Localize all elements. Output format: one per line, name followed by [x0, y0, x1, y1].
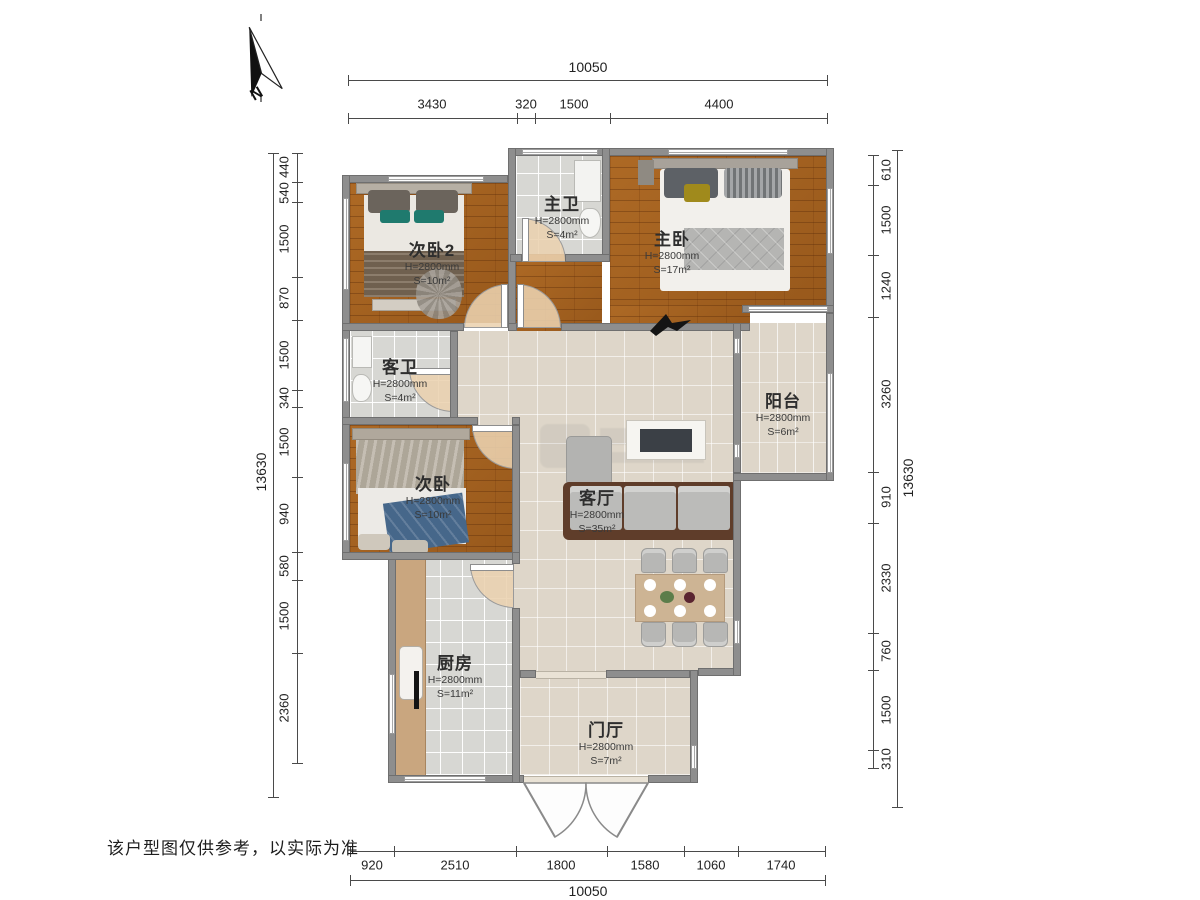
wall-balcony-bottom	[733, 473, 834, 481]
dim-label: 310	[879, 748, 894, 770]
dim-tick	[292, 763, 303, 764]
dim-tick	[868, 185, 879, 186]
dim-label: 2360	[277, 694, 292, 723]
bedroom2-door-leaf	[501, 284, 508, 328]
wall-guestbath-right	[450, 331, 458, 425]
wall-guestbath-bottom	[342, 417, 478, 425]
wall-masterbath-right	[602, 148, 610, 262]
wall-bedrooms-bottom-a	[342, 323, 464, 331]
dining-chair	[703, 548, 728, 573]
room-label-balcony: 阳台 H=2800mm S=6m²	[756, 387, 811, 439]
dim-line	[348, 118, 828, 119]
dim-tick	[292, 153, 303, 154]
tv-cabinet	[626, 420, 706, 460]
room-height: H=2800mm	[535, 215, 590, 229]
dim-tick	[868, 523, 879, 524]
dim-label-left-total: 13630	[253, 453, 269, 492]
dim-tick	[825, 846, 826, 857]
dim-line	[350, 880, 825, 881]
room-area: S=11m²	[428, 688, 483, 702]
master-top-window	[668, 149, 788, 155]
dim-tick	[738, 846, 739, 857]
dim-tick	[292, 182, 303, 183]
room-label-bedroom: 次卧 H=2800mm S=10m²	[406, 470, 461, 522]
master-balcony-window	[748, 306, 828, 312]
wall-kitchen-right-stub	[512, 552, 520, 564]
compass	[234, 23, 283, 97]
room-height: H=2800mm	[405, 261, 460, 275]
dim-label: 320	[515, 97, 537, 112]
dim-tick	[292, 580, 303, 581]
wall-kitchen-left	[388, 552, 396, 783]
dim-tick	[292, 552, 303, 553]
balcony-right-window	[827, 373, 833, 473]
dim-line	[350, 851, 825, 852]
room-name: 主卫	[535, 190, 590, 215]
wall-kitchen-right	[512, 608, 520, 783]
dining-chair	[672, 622, 697, 647]
dim-tick	[292, 277, 303, 278]
room-name: 主卧	[645, 225, 700, 250]
dim-label: 1240	[879, 272, 894, 301]
dining-chair	[641, 622, 666, 647]
room-name: 阳台	[756, 387, 811, 412]
room-label-guest-bath: 客卫 H=2800mm S=4m²	[373, 353, 428, 405]
wall-masterbath-bottom-a	[510, 254, 522, 262]
dining-chair	[641, 548, 666, 573]
dim-line	[873, 155, 874, 768]
wall-living-right	[733, 473, 741, 676]
kitchen-bottom-window	[404, 776, 486, 782]
dim-label-right-total: 13630	[900, 459, 916, 498]
room-label-living-room: 客厅 H=2800mm S=35m²	[570, 484, 625, 536]
dim-tick	[892, 150, 903, 151]
dim-tick	[348, 75, 349, 86]
dim-label: 580	[277, 555, 292, 577]
room-name: 次卧2	[405, 236, 460, 261]
bedroom-left-window	[343, 463, 349, 541]
dim-tick	[868, 633, 879, 634]
room-area: S=10m²	[406, 509, 461, 523]
room-area: S=10m²	[405, 275, 460, 289]
bedroom2-top-window	[388, 176, 484, 182]
dim-tick	[516, 846, 517, 857]
room-height: H=2800mm	[428, 674, 483, 688]
room-height: H=2800mm	[373, 378, 428, 392]
dim-label: 1060	[697, 858, 726, 873]
dim-tick	[268, 153, 279, 154]
dim-label: 1500	[277, 602, 292, 631]
dim-tick	[268, 797, 279, 798]
room-area: S=4m²	[535, 229, 590, 243]
wall-bedroom2-divider	[508, 148, 516, 331]
bedroom2-left-window	[343, 198, 349, 290]
dim-label: 940	[277, 503, 292, 525]
wall-bedroom-right	[512, 425, 520, 560]
wall-bedrooms-bottom-b	[508, 323, 517, 331]
dim-label: 1500	[277, 341, 292, 370]
room-name: 厨房	[428, 649, 483, 674]
dim-label: 610	[879, 159, 894, 181]
dim-tick	[868, 155, 879, 156]
entry-double-door	[524, 783, 648, 837]
dim-label: 340	[277, 387, 292, 409]
entry-threshold	[524, 776, 648, 784]
wall-bedrooms-bottom-c	[561, 323, 750, 331]
dim-tick	[868, 768, 879, 769]
room-area: S=6m²	[756, 426, 811, 440]
kitchen-stove	[414, 671, 419, 709]
dim-tick	[827, 113, 828, 124]
dim-label: 1500	[879, 696, 894, 725]
dim-label: 2510	[441, 858, 470, 873]
room-height: H=2800mm	[645, 250, 700, 264]
kitchen-sink	[399, 646, 423, 700]
dim-tick	[607, 846, 608, 857]
dim-tick	[868, 670, 879, 671]
room-label-master-bath: 主卫 H=2800mm S=4m²	[535, 190, 590, 242]
dim-label: 440	[277, 156, 292, 178]
dim-line	[348, 80, 828, 81]
dim-tick	[394, 846, 395, 857]
wall-foyer-top-b	[606, 670, 690, 678]
guest-bath-toilet	[352, 374, 372, 402]
dim-label-top-total: 10050	[569, 59, 608, 75]
dim-label: 1500	[879, 206, 894, 235]
room-height: H=2800mm	[406, 495, 461, 509]
dim-line	[897, 150, 898, 807]
table-plant	[660, 591, 674, 603]
room-label-master-bedroom: 主卧 H=2800mm S=17m²	[645, 225, 700, 277]
dim-label: 2330	[879, 564, 894, 593]
dim-label: 540	[277, 182, 292, 204]
dim-tick	[892, 807, 903, 808]
dim-tick	[868, 472, 879, 473]
room-area: S=35m²	[570, 523, 625, 537]
dim-tick	[517, 113, 518, 124]
floor-plan: N 次卧2 H=2800mm S=10m² 主卫 H=2800mm S=4m² …	[0, 0, 1200, 900]
dim-line	[273, 153, 274, 797]
room-name: 门厅	[579, 716, 634, 741]
guestbath-left-window	[343, 338, 349, 402]
dim-tick	[350, 875, 351, 886]
dim-label: 3430	[418, 97, 447, 112]
balcony-divider-window-1	[734, 338, 740, 354]
room-label-bedroom2: 次卧2 H=2800mm S=10m²	[405, 236, 460, 288]
room-area: S=4m²	[373, 392, 428, 406]
dim-label: 870	[277, 287, 292, 309]
dim-tick	[292, 407, 303, 408]
dim-label: 1500	[277, 225, 292, 254]
dim-label: 4400	[705, 97, 734, 112]
wall-masterbath-bottom-b	[565, 254, 610, 262]
dining-table	[635, 574, 725, 622]
dim-tick	[684, 846, 685, 857]
dim-tick	[535, 113, 536, 124]
compass-north-label: N	[248, 84, 267, 105]
dim-tick	[292, 202, 303, 203]
tv-screen	[640, 429, 692, 452]
room-name: 客卫	[373, 353, 428, 378]
dim-label: 760	[879, 640, 894, 662]
room-name: 次卧	[406, 470, 461, 495]
dim-label-bottom-total: 10050	[569, 883, 608, 899]
master-corridor-door-leaf	[517, 284, 524, 328]
wall-bedroom-top-stub	[512, 417, 520, 425]
dim-tick	[348, 113, 349, 124]
dim-tick	[292, 390, 303, 391]
room-name: 客厅	[570, 484, 625, 509]
dim-label: 920	[361, 858, 383, 873]
dim-tick	[825, 875, 826, 886]
room-area: S=7m²	[579, 755, 634, 769]
dim-tick	[292, 653, 303, 654]
masterbath-top-window	[522, 149, 598, 155]
foyer-opening	[536, 671, 606, 679]
dim-tick	[868, 255, 879, 256]
living-right-window	[734, 620, 740, 644]
dim-tick	[610, 113, 611, 124]
room-height: H=2800mm	[756, 412, 811, 426]
room-label-foyer: 门厅 H=2800mm S=7m²	[579, 716, 634, 768]
master-bath-door-leaf	[522, 218, 529, 262]
master-right-window	[827, 188, 833, 254]
sofa-chaise	[566, 436, 612, 486]
dim-line	[297, 153, 298, 763]
kitchen-door-leaf	[470, 564, 514, 571]
dim-label: 1500	[560, 97, 589, 112]
balcony-divider-window-2	[734, 444, 740, 458]
dim-tick	[292, 477, 303, 478]
room-label-kitchen: 厨房 H=2800mm S=11m²	[428, 649, 483, 701]
dim-label: 3260	[879, 380, 894, 409]
table-decor	[684, 592, 695, 603]
wall-bedroom-bottom	[342, 552, 520, 560]
dim-label: 1800	[547, 858, 576, 873]
dim-tick	[827, 75, 828, 86]
wall-foyer-top-a	[520, 670, 536, 678]
dim-tick	[868, 317, 879, 318]
dining-chair	[703, 622, 728, 647]
room-area: S=17m²	[645, 264, 700, 278]
guest-bath-sink	[352, 336, 372, 368]
bedroom-door-leaf	[472, 425, 516, 432]
dim-label: 1740	[767, 858, 796, 873]
dining-chair	[672, 548, 697, 573]
dim-label: 1500	[277, 428, 292, 457]
room-height: H=2800mm	[579, 741, 634, 755]
dim-tick	[868, 750, 879, 751]
foyer-right-window	[691, 745, 697, 769]
dim-label: 910	[879, 486, 894, 508]
dim-tick	[292, 320, 303, 321]
room-height: H=2800mm	[570, 509, 625, 523]
disclaimer-text: 该户型图仅供参考，以实际为准	[107, 834, 359, 859]
kitchen-left-window	[389, 674, 395, 734]
dim-label: 1580	[631, 858, 660, 873]
